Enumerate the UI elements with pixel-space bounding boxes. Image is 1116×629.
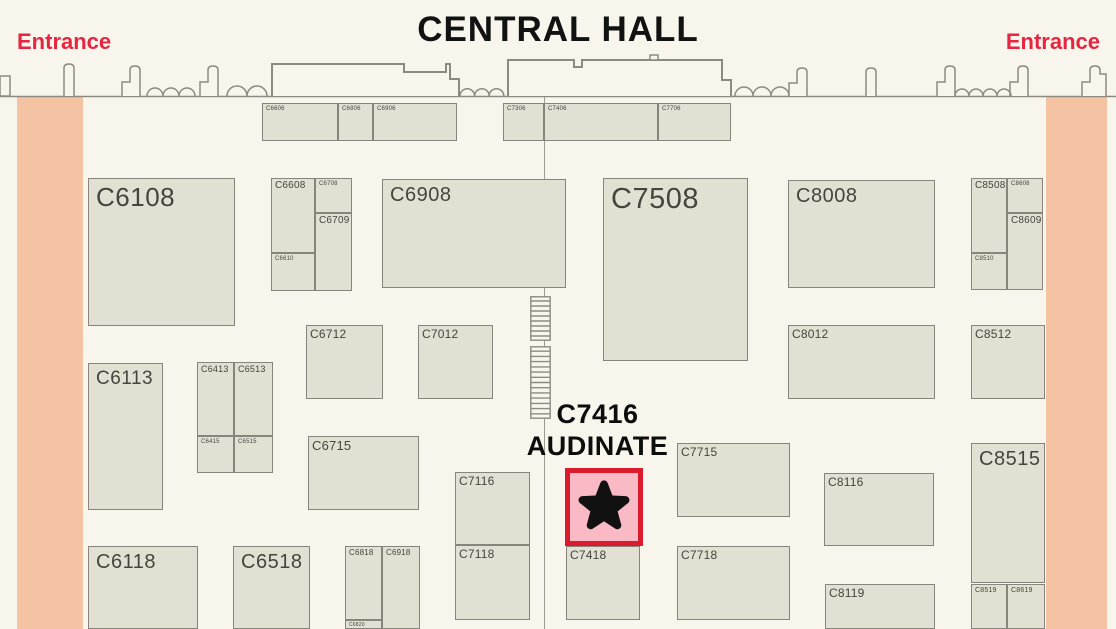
booth-label: C6518 [241, 551, 302, 573]
stairs-icon [530, 296, 551, 341]
booth-C6108: C6108 [88, 178, 235, 326]
booth-label: C8508 [975, 180, 1005, 191]
booth-label: C7706 [662, 106, 681, 112]
booth-C8512: C8512 [971, 325, 1045, 399]
booth-C8515: C8515 [971, 443, 1045, 583]
booth-label: C6820 [349, 622, 365, 628]
booth-label: C6818 [349, 548, 374, 557]
booth-C6513: C6513 [234, 362, 273, 436]
booth-C6518: C6518 [233, 546, 310, 629]
booth-label: C6918 [386, 548, 411, 557]
booth-C6118: C6118 [88, 546, 198, 629]
booth-label: C8519 [975, 587, 997, 594]
booth-label: C8012 [792, 327, 828, 341]
booth-label: C6118 [96, 551, 156, 573]
booth-C6818: C6818 [345, 546, 382, 620]
booth-label: C8510 [975, 256, 994, 262]
booth-label: C6709 [319, 215, 349, 226]
booth-C7706: C7706 [658, 103, 731, 141]
booth-label: C8512 [975, 327, 1011, 341]
highlight-booth-number: C7416 [480, 399, 715, 431]
booth-C6515: C6515 [234, 436, 273, 473]
booth-label: C6806 [342, 106, 361, 112]
booth-C8510: C8510 [971, 253, 1007, 290]
floor-plan-map: C6606C6806C6906C7306C7406C7706C6108C6608… [0, 0, 1116, 629]
booth-C7418: C7418 [566, 546, 640, 620]
booth-C7406: C7406 [544, 103, 658, 141]
booth-label: C8515 [979, 448, 1040, 470]
booth-C6413: C6413 [197, 362, 234, 436]
booth-C8116: C8116 [824, 473, 934, 546]
booth-C6415: C6415 [197, 436, 234, 473]
booth-C6918: C6918 [382, 546, 420, 629]
entrance-corridor-left [17, 97, 83, 629]
booth-C6606: C6606 [262, 103, 338, 141]
booth-label: C7306 [507, 106, 526, 112]
booth-label: C8119 [829, 586, 864, 600]
booth-C6709: C6709 [315, 213, 352, 291]
booth-label: C7718 [681, 548, 717, 562]
booth-C8119: C8119 [825, 584, 935, 629]
booth-C8609: C8609 [1007, 213, 1043, 290]
booth-C6908: C6908 [382, 179, 566, 288]
booth-C8012: C8012 [788, 325, 935, 399]
booth-label: C6415 [201, 439, 220, 445]
booth-C8619: C8619 [1007, 584, 1045, 629]
booth-label: C6606 [266, 106, 285, 112]
star-icon [570, 469, 638, 545]
booth-label: C6515 [238, 439, 257, 445]
booth-C7306: C7306 [503, 103, 544, 141]
booth-label: C6108 [96, 182, 175, 212]
booth-label: C7012 [422, 327, 458, 341]
booth-label: C6413 [201, 364, 229, 374]
booth-label: C7418 [570, 548, 606, 562]
entrance-corridor-right [1046, 97, 1107, 629]
booth-C7118: C7118 [455, 545, 530, 620]
booth-label: C7508 [611, 183, 699, 215]
highlighted-booth-c7416 [565, 468, 643, 546]
booth-C6610: C6610 [271, 253, 315, 291]
booth-label: C6113 [96, 368, 153, 389]
booth-label: C7406 [548, 106, 567, 112]
booth-C8008: C8008 [788, 180, 935, 288]
booth-label: C8619 [1011, 587, 1033, 594]
booth-label: C7116 [459, 474, 494, 488]
booth-C6715: C6715 [308, 436, 419, 510]
booth-C8519: C8519 [971, 584, 1007, 629]
booth-C6712: C6712 [306, 325, 383, 399]
booth-C6820: C6820 [345, 620, 382, 629]
booth-label: C6715 [312, 438, 351, 453]
booth-label: C6513 [238, 364, 266, 374]
booth-C6708: C6708 [315, 178, 352, 213]
booth-label: C6908 [390, 184, 451, 206]
booth-C8608: C8608 [1007, 178, 1043, 213]
highlight-label: C7416 AUDINATE [480, 399, 715, 462]
entrance-label-right: Entrance [1006, 29, 1100, 55]
booth-label: C8609 [1011, 215, 1041, 226]
booth-C7012: C7012 [418, 325, 493, 399]
booth-C8508: C8508 [971, 178, 1007, 253]
booth-C6113: C6113 [88, 363, 163, 510]
booth-label: C6610 [275, 256, 294, 262]
booth-C7116: C7116 [455, 472, 530, 545]
highlight-exhibitor-name: AUDINATE [480, 431, 715, 463]
booth-C7718: C7718 [677, 546, 790, 620]
booth-C6906: C6906 [373, 103, 457, 141]
booth-label: C8008 [796, 185, 857, 207]
booth-label: C6608 [275, 180, 305, 191]
booth-C6608: C6608 [271, 178, 315, 253]
booth-C7508: C7508 [603, 178, 748, 361]
booth-label: C6906 [377, 106, 396, 112]
booth-C6806: C6806 [338, 103, 373, 141]
booth-label: C6712 [310, 327, 346, 341]
entrance-label-left: Entrance [17, 29, 111, 55]
booth-label: C8116 [828, 475, 863, 489]
hall-title: CENTRAL HALL [0, 10, 1116, 50]
booth-label: C8608 [1011, 181, 1030, 187]
booth-label: C6708 [319, 181, 338, 187]
booth-label: C7118 [459, 547, 494, 561]
